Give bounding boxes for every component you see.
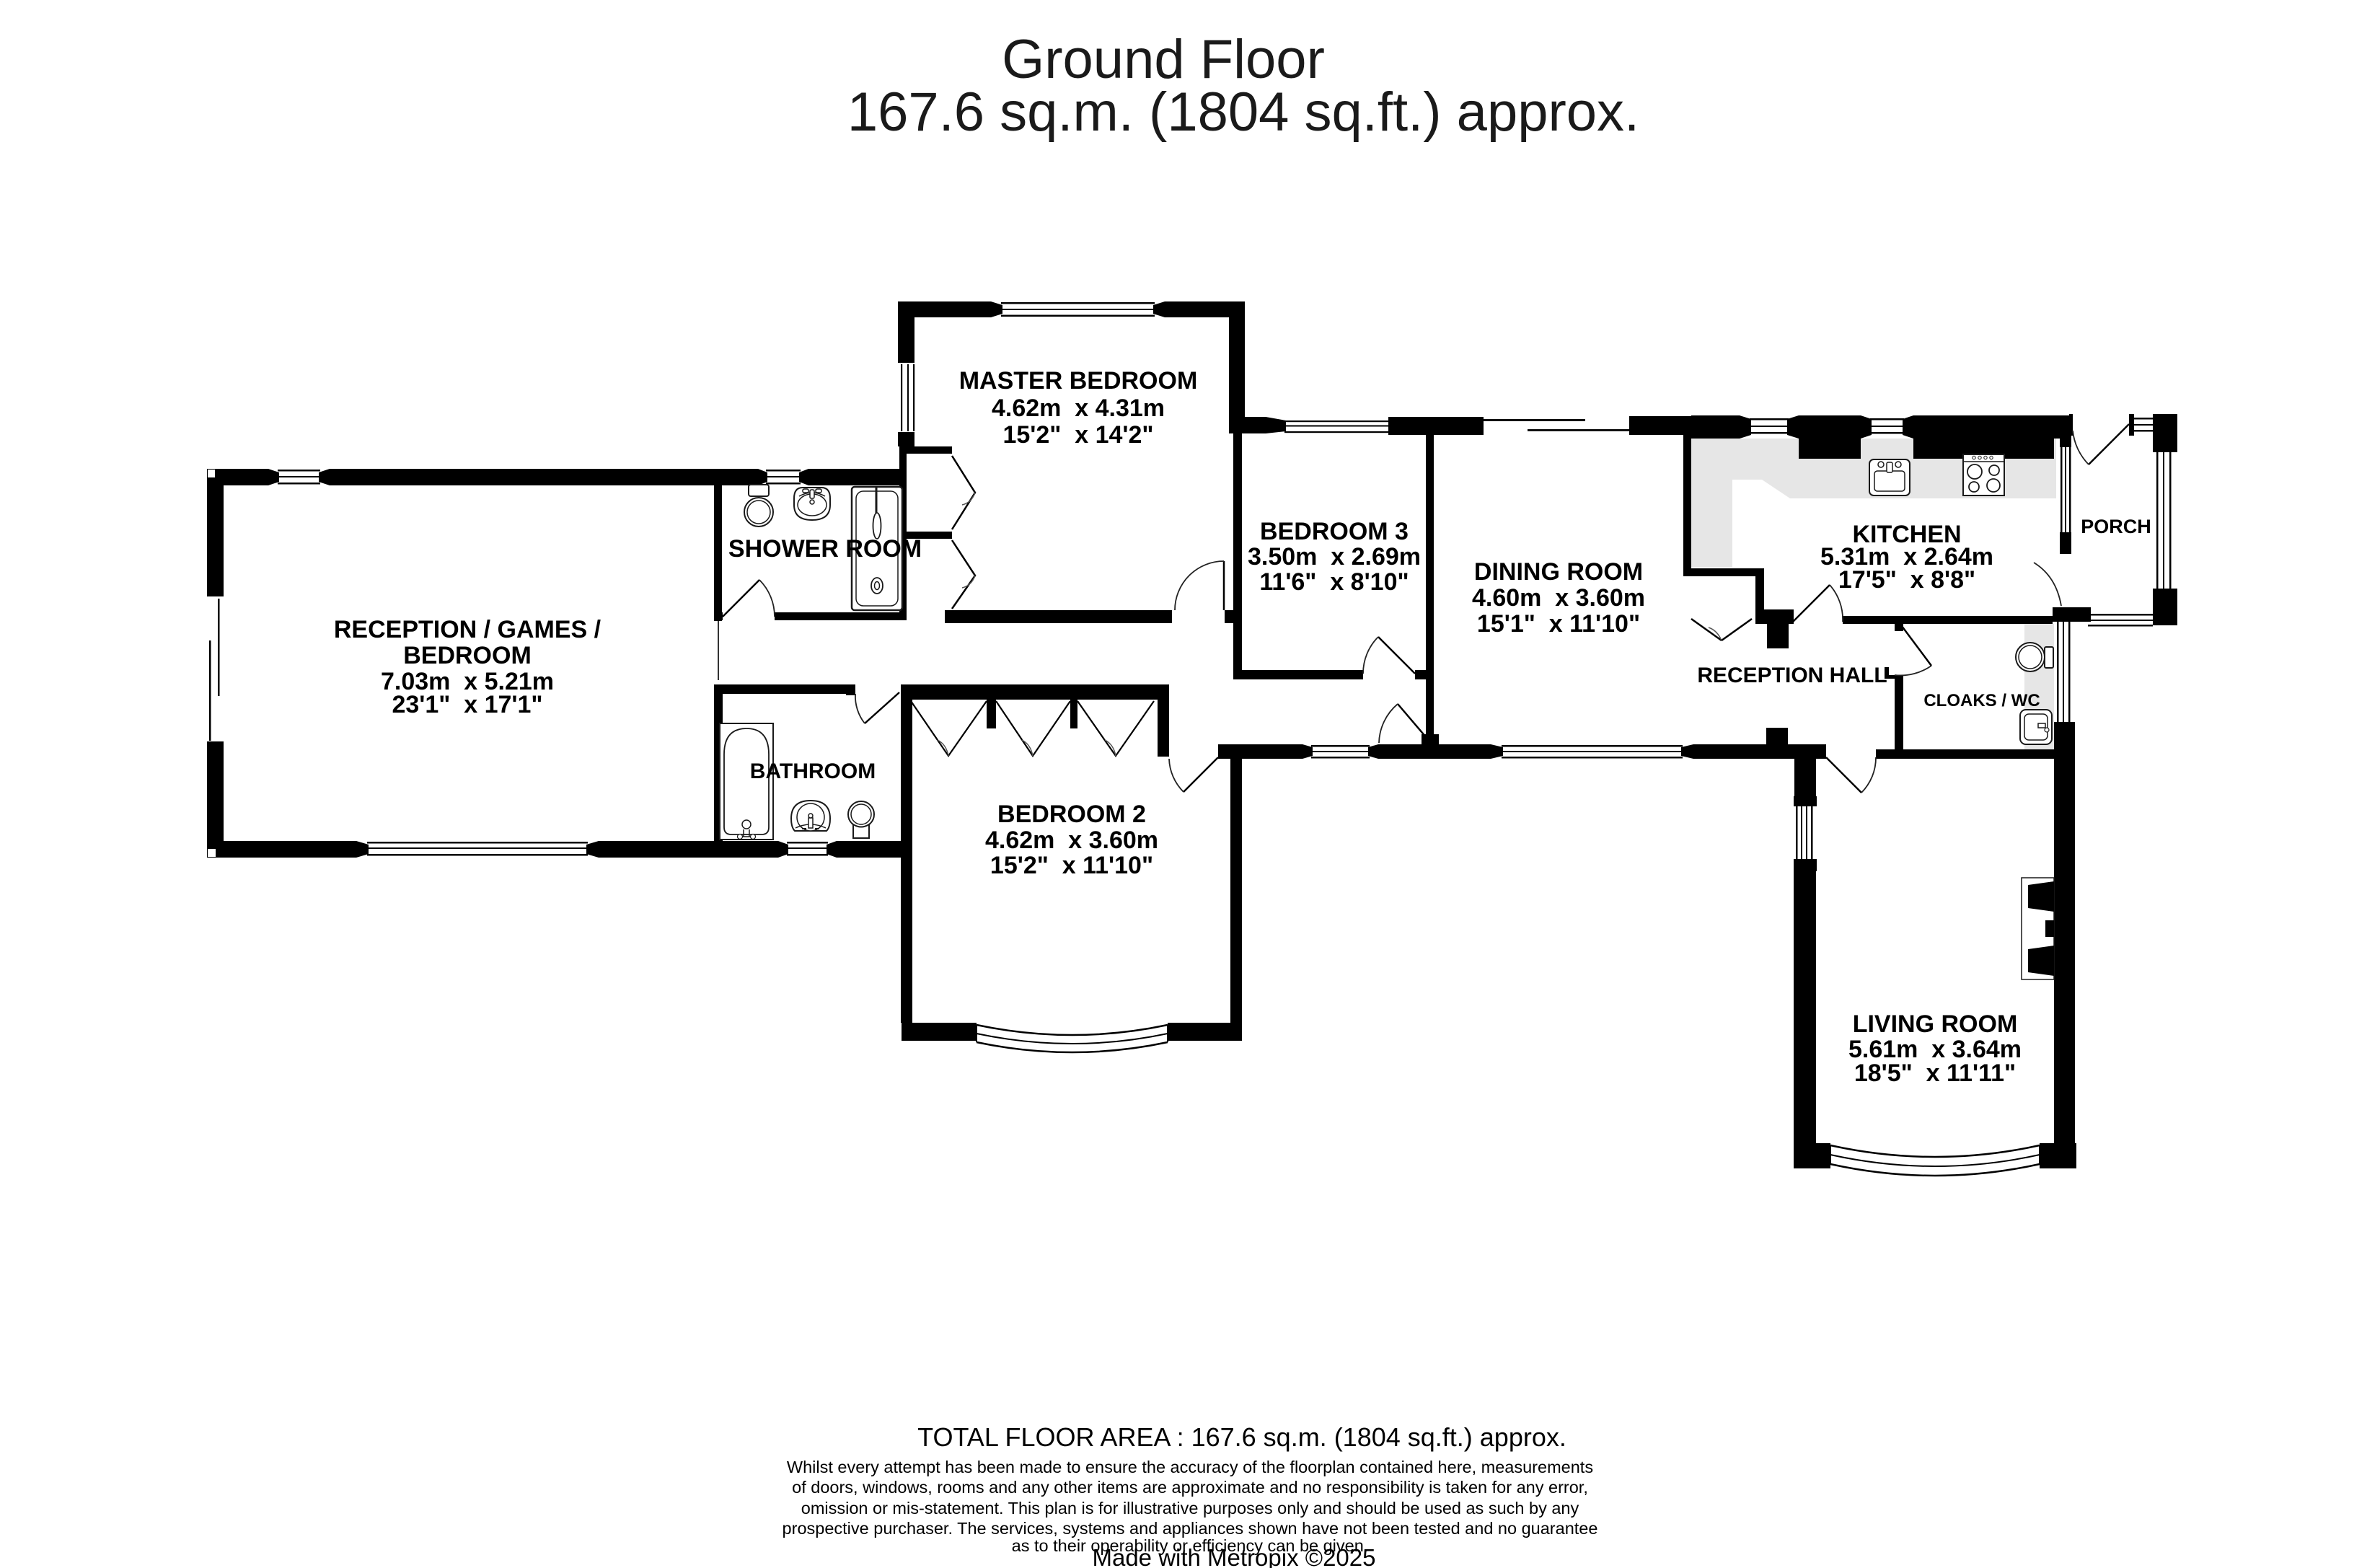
svg-text:Made with Metropix ©2025: Made with Metropix ©2025 bbox=[1092, 1544, 1375, 1568]
svg-text:15'2" x 14'2": 15'2" x 14'2" bbox=[1002, 421, 1153, 449]
svg-text:RECEPTION / GAMES /: RECEPTION / GAMES / bbox=[334, 616, 601, 643]
svg-text:Whilst every attempt has been: Whilst every attempt has been made to en… bbox=[787, 1458, 1593, 1476]
svg-text:BEDROOM 3: BEDROOM 3 bbox=[1260, 518, 1409, 545]
svg-text:omission or mis-statement. Thi: omission or mis-statement. This plan is … bbox=[801, 1499, 1579, 1518]
svg-text:PORCH: PORCH bbox=[2081, 516, 2151, 537]
svg-text:BATHROOM: BATHROOM bbox=[750, 759, 876, 783]
svg-text:of doors, windows, rooms and a: of doors, windows, rooms and any other i… bbox=[792, 1478, 1588, 1497]
svg-text:15'2" x 11'10": 15'2" x 11'10" bbox=[990, 852, 1153, 879]
svg-text:LIVING ROOM: LIVING ROOM bbox=[1853, 1010, 2018, 1038]
svg-text:3.50m x 2.69m: 3.50m x 2.69m bbox=[1248, 543, 1421, 571]
svg-text:167.6 sq.m. (1804 sq.ft.) appr: 167.6 sq.m. (1804 sq.ft.) approx. bbox=[847, 82, 1639, 143]
svg-text:SHOWER ROOM: SHOWER ROOM bbox=[728, 535, 922, 563]
svg-text:4.62m x 4.31m: 4.62m x 4.31m bbox=[992, 395, 1165, 422]
svg-text:TOTAL FLOOR AREA : 167.6 sq.m.: TOTAL FLOOR AREA : 167.6 sq.m. (1804 sq.… bbox=[917, 1422, 1566, 1452]
svg-text:BEDROOM: BEDROOM bbox=[403, 642, 532, 669]
svg-text:15'1" x 11'10": 15'1" x 11'10" bbox=[1477, 610, 1640, 638]
svg-text:4.60m x 3.60m: 4.60m x 3.60m bbox=[1472, 584, 1645, 612]
svg-text:17'5" x 8'8": 17'5" x 8'8" bbox=[1838, 566, 1975, 594]
svg-text:11'6" x 8'10": 11'6" x 8'10" bbox=[1259, 568, 1409, 596]
svg-text:BEDROOM 2: BEDROOM 2 bbox=[997, 801, 1146, 828]
svg-text:MASTER BEDROOM: MASTER BEDROOM bbox=[959, 367, 1198, 395]
svg-text:prospective purchaser. The ser: prospective purchaser. The services, sys… bbox=[783, 1519, 1598, 1538]
svg-text:23'1" x 17'1": 23'1" x 17'1" bbox=[392, 691, 542, 718]
svg-text:4.62m x 3.60m: 4.62m x 3.60m bbox=[985, 827, 1158, 854]
svg-text:18'5" x 11'11": 18'5" x 11'11" bbox=[1854, 1060, 2016, 1087]
svg-text:RECEPTION HALL: RECEPTION HALL bbox=[1697, 664, 1887, 687]
svg-text:DINING ROOM: DINING ROOM bbox=[1474, 558, 1643, 586]
svg-text:CLOAKS / WC: CLOAKS / WC bbox=[1923, 691, 2040, 710]
